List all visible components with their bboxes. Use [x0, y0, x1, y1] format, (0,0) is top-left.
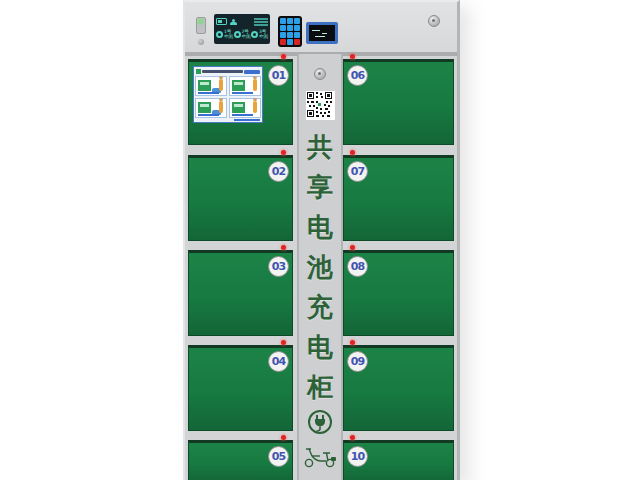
status-led-icon [350, 435, 355, 440]
status-led-icon [350, 245, 355, 250]
keypad-key [287, 39, 293, 45]
door-number-badge: 10 [347, 446, 368, 467]
status-screen: 1号 空闲 2号 空闲 3号 [214, 14, 270, 44]
status-led-icon [350, 54, 355, 59]
sticker-logo-icon [196, 69, 201, 74]
battery-icon [216, 18, 227, 25]
sticker-footnote [234, 119, 260, 121]
sticker-band [244, 70, 260, 74]
locker-door-04: 04 [188, 345, 293, 431]
door-number-badge: 02 [268, 161, 289, 182]
menu-lines-icon [254, 18, 268, 26]
status-led-icon [350, 150, 355, 155]
title-char: 充 [307, 287, 333, 327]
keypad-key [294, 18, 300, 24]
locker-door-02: 02 [188, 155, 293, 241]
gauge-3-status: 空闲 [259, 34, 268, 39]
keypad-key-red [294, 39, 300, 45]
title-char: 电 [307, 207, 333, 247]
keypad-key [287, 18, 293, 24]
sticker-step-1 [195, 76, 227, 96]
keypad-key [280, 18, 286, 24]
keypad-key [287, 32, 293, 38]
door-number-badge: 01 [268, 65, 289, 86]
e-bike-icon [302, 445, 338, 472]
keypad-key [280, 32, 286, 38]
locker-door-08: 08 [343, 250, 454, 336]
keypad-key-red [280, 39, 286, 45]
keypad-key [294, 32, 300, 38]
instruction-sticker [193, 66, 263, 123]
door-number-badge: 09 [347, 351, 368, 372]
product-photo: 1号 空闲 2号 空闲 3号 [0, 0, 640, 480]
title-char: 共 [307, 127, 333, 167]
status-led-icon [281, 54, 286, 59]
sticker-step-4 [229, 98, 261, 118]
gauge-ring-icon [251, 31, 258, 38]
gauge-ring-icon [234, 31, 241, 38]
locker-door-03: 03 [188, 250, 293, 336]
door-number-badge: 04 [268, 351, 289, 372]
power-led-icon [196, 17, 206, 34]
center-strip: 共 享 电 池 充 电 柜 [297, 54, 343, 480]
person-icon [230, 19, 236, 25]
status-led-icon [281, 340, 286, 345]
lcd-screen [309, 25, 335, 41]
control-panel: 1号 空闲 2号 空闲 3号 [185, 2, 457, 56]
sticker-title [202, 70, 243, 73]
title-char: 池 [307, 247, 333, 287]
gauge-1-status: 空闲 [224, 34, 233, 39]
locker-door-06: 06 [343, 59, 454, 145]
status-led-icon [281, 435, 286, 440]
locker-door-10: 10 [343, 440, 454, 480]
lcd-display [306, 22, 338, 44]
status-led-icon [350, 340, 355, 345]
power-plug-icon [307, 409, 333, 439]
charging-cabinet: 1号 空闲 2号 空闲 3号 [183, 0, 460, 480]
title-char: 柜 [307, 367, 333, 407]
door-number-badge: 03 [268, 256, 289, 277]
door-number-badge: 05 [268, 446, 289, 467]
qr-code-icon [306, 91, 335, 120]
gauge-2-status: 空闲 [242, 34, 251, 39]
locker-door-09: 09 [343, 345, 454, 431]
locker-door-01: 01 [188, 59, 293, 145]
door-number-badge: 06 [347, 65, 368, 86]
slot-gauge-2: 2号 空闲 [234, 29, 251, 39]
title-char: 电 [307, 327, 333, 367]
locker-door-07: 07 [343, 155, 454, 241]
sticker-step-3 [195, 98, 227, 118]
gauge-ring-icon [216, 31, 223, 38]
door-number-badge: 07 [347, 161, 368, 182]
title-char: 享 [307, 167, 333, 207]
keypad-key [280, 25, 286, 31]
lock-knob-icon [428, 15, 440, 27]
keypad-key [287, 25, 293, 31]
lock-knob-icon [314, 68, 326, 80]
sticker-step-2 [229, 76, 261, 96]
locker-door-05: 05 [188, 440, 293, 480]
vertical-title: 共 享 电 池 充 电 柜 [307, 127, 333, 407]
door-number-badge: 08 [347, 256, 368, 277]
status-screen-icons [216, 16, 268, 27]
keypad-key [294, 25, 300, 31]
screw-icon [198, 39, 204, 45]
status-led-icon [281, 245, 286, 250]
status-led-icon [281, 150, 286, 155]
keypad [278, 16, 302, 47]
slot-gauge-1: 1号 空闲 [216, 29, 233, 39]
slot-gauge-3: 3号 空闲 [251, 29, 268, 39]
